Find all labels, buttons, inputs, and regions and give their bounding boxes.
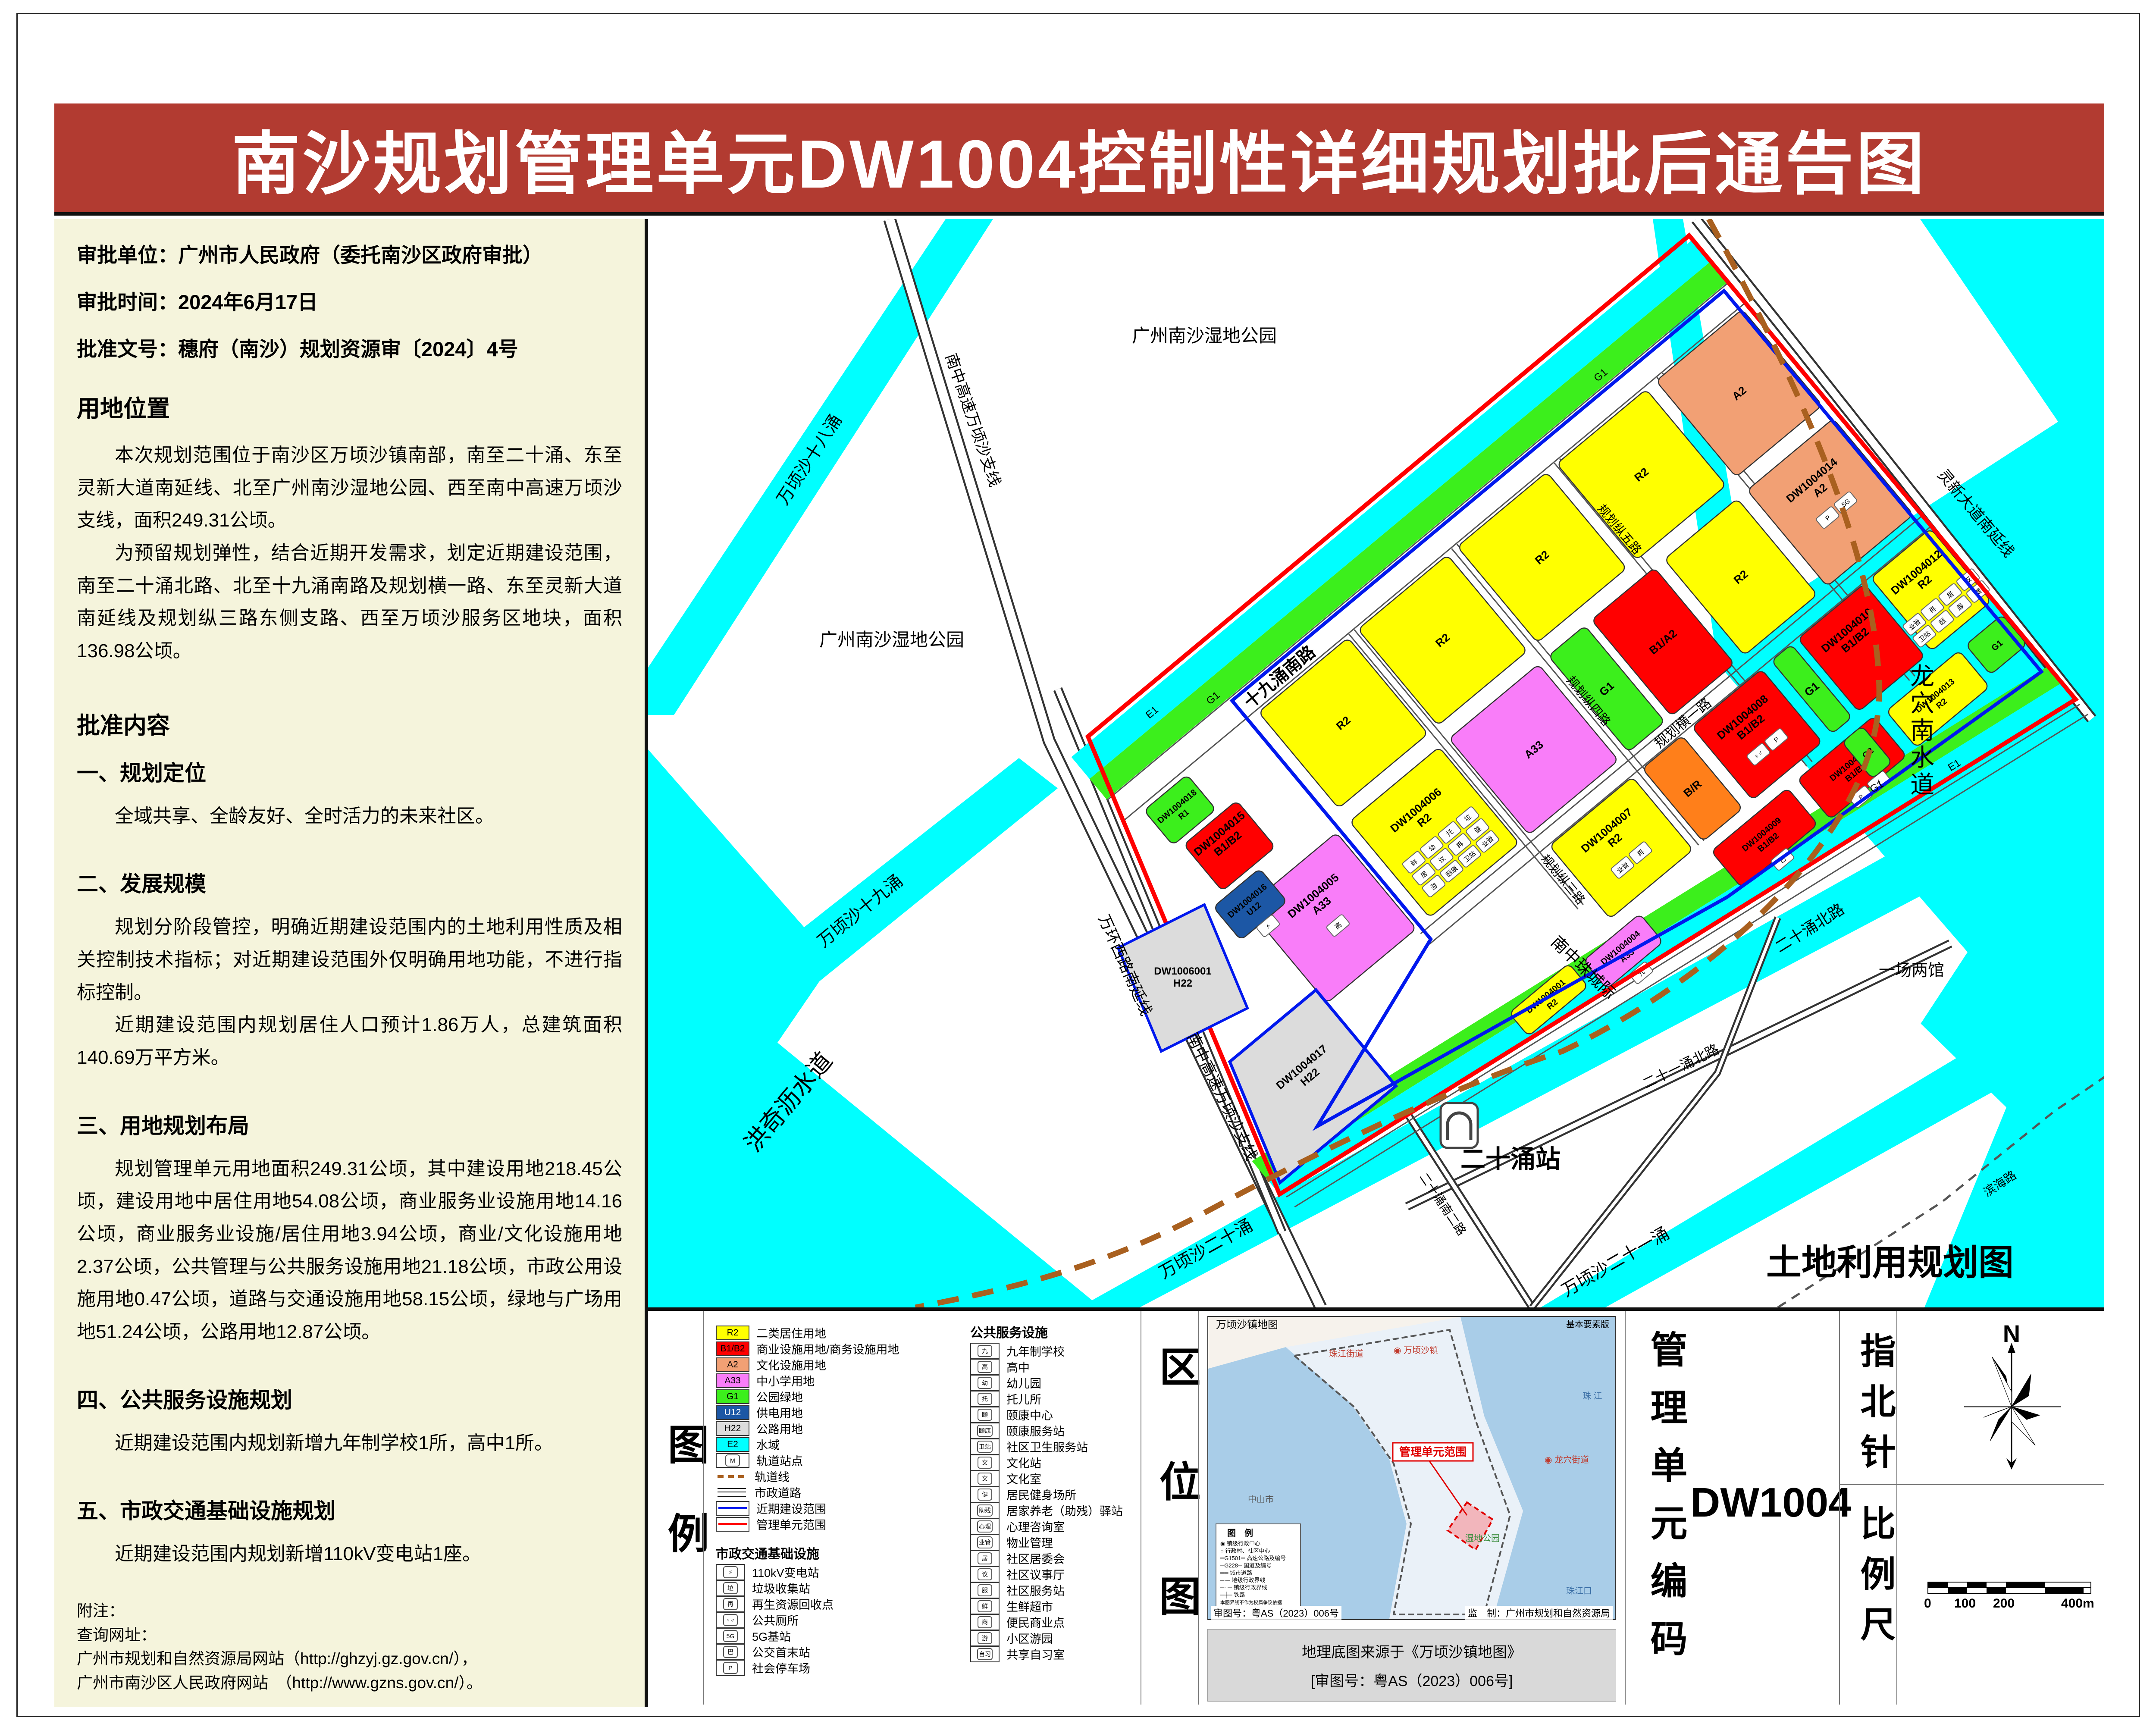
map-label-vertical: 龙穴南水道 [1910, 663, 1934, 798]
public-row: 文文化站 [970, 1454, 1138, 1470]
物业管理-icon: 业管 [977, 1536, 993, 1548]
muni-row: 再再生资源回收点 [716, 1596, 964, 1612]
小区游园-icon: 游 [978, 1632, 992, 1644]
scalebar-seg [1987, 1588, 2006, 1593]
scalebar-tick: 200 [1993, 1596, 2015, 1611]
locmap-place-label: 珠江街道 [1329, 1349, 1363, 1359]
public-row: 托托儿所 [970, 1391, 1138, 1407]
section-2-para-1: 规划分阶段管控，明确近期建设范围内的土地利用性质及相关控制技术指标；对近期建设范… [77, 911, 622, 1009]
public-row: 助残居家养老（助残）驿站 [970, 1502, 1138, 1518]
文化站-icon: 文 [978, 1457, 992, 1469]
legend-muni-rows: ⚡110kV变电站垃垃圾收集站再再生资源回收点♀♂公共厕所5G5G基站巴公交首末… [716, 1564, 964, 1676]
muni-label: 再生资源回收点 [752, 1595, 834, 1612]
divider [1141, 1311, 1141, 1705]
divider [703, 1311, 704, 1705]
社区卫生服务站-icon: 卫站 [977, 1441, 993, 1453]
public-row: 颐康颐康服务站 [970, 1423, 1138, 1439]
文化室-icon: 文 [978, 1473, 992, 1485]
footnotes: 附注： 查询网址： 广州市规划和自然资源局网站（http://ghzyj.gz.… [77, 1599, 483, 1695]
muni-row: 垃垃圾收集站 [716, 1580, 964, 1596]
scalebar-seg [1967, 1588, 1987, 1593]
public-row: 文文化室 [970, 1470, 1138, 1486]
muni-row: 5G5G基站 [716, 1628, 964, 1644]
legend-label: 二类居住用地 [756, 1324, 826, 1341]
legend-title: 图例 [655, 1423, 714, 1601]
legend-swatch-A2: A2 [716, 1357, 749, 1372]
legend-row-road: 市政道路 [716, 1484, 964, 1500]
legend-row-R2: R2二类居住用地 [716, 1325, 964, 1341]
便民商业点-icon: 商 [978, 1616, 992, 1628]
public-row: 高高中 [970, 1359, 1138, 1375]
scalebar-seg [1948, 1588, 1967, 1593]
public-icon-文化室: 文 [970, 1470, 1000, 1487]
scalebar-seg [1928, 1583, 1948, 1587]
locmap-place-label: ◉ 万顷沙镇 [1394, 1345, 1438, 1355]
muni-icon-公交首末站: 巴 [716, 1644, 745, 1660]
map-label: 广州南沙湿地公园 [1132, 326, 1277, 346]
legend-symbol-rail [716, 1470, 748, 1483]
scalebar-tick: 100 [1954, 1596, 1976, 1611]
legend-landuse-rows: R2二类居住用地B1/B2商业设施用地/商务设施用地A2文化设施用地A33中小学… [716, 1325, 964, 1532]
public-label: 社区居委会 [1006, 1550, 1065, 1567]
居家养老（助残）驿站-icon: 助残 [977, 1504, 993, 1517]
muni-label: 社会停车场 [752, 1659, 810, 1676]
public-label: 生鲜超市 [1006, 1598, 1053, 1614]
muni-label: 110kV变电站 [752, 1564, 819, 1580]
rail-line-symbol [718, 1475, 746, 1478]
社区服务站-icon: 服 [978, 1584, 992, 1596]
public-row: 游小区游园 [970, 1630, 1138, 1646]
5G基站-icon: 5G [723, 1630, 738, 1642]
location-heading: 用地位置 [77, 389, 622, 423]
public-label: 社区议事厅 [1006, 1566, 1065, 1583]
legend-landuse-column: R2二类居住用地B1/B2商业设施用地/商务设施用地A2文化设施用地A33中小学… [716, 1325, 964, 1676]
public-icon-颐康中心: 颐 [970, 1407, 1000, 1423]
muni-icon-110kV变电站: ⚡ [716, 1564, 745, 1580]
public-icon-社区卫生服务站: 卫站 [970, 1439, 1000, 1455]
muni-label: 垃圾收集站 [752, 1580, 810, 1596]
legend-label: 市政道路 [755, 1484, 801, 1501]
legend-label: 公园绿地 [756, 1388, 803, 1405]
scalebar-seg [2006, 1588, 2045, 1593]
public-row: 幼幼儿园 [970, 1375, 1138, 1391]
location-para-1: 本次规划范围位于南沙区万顷沙镇南部，南至二十涌、东至灵新大道南延线、北至广州南沙… [77, 439, 622, 537]
legend-label: 轨道站点 [756, 1452, 803, 1469]
location-para-2: 为预留规划弹性，结合近期开发需求，划定近期建设范围，南至二十涌北路、北至十九涌南… [77, 537, 622, 668]
public-icon-社区服务站: 服 [970, 1582, 1000, 1598]
locmap-caption: 地理底图来源于《万顷沙镇地图》 [审图号：粤AS（2023）006号] [1207, 1629, 1616, 1702]
legend-symbol-recent [716, 1501, 749, 1516]
divider [1839, 1311, 1840, 1705]
map-label: 土地利用规划图 [1766, 1243, 2014, 1282]
footnote-line: 附注： [77, 1599, 483, 1623]
高中-icon: 高 [978, 1361, 992, 1373]
再生资源回收点-icon: 再 [723, 1598, 738, 1610]
public-label: 文化站 [1006, 1454, 1041, 1471]
legend-public-rows: 九九年制学校高高中幼幼儿园托托儿所颐颐康中心颐康颐康服务站卫站社区卫生服务站文文… [970, 1343, 1138, 1662]
muni-label: 公共厕所 [752, 1611, 799, 1628]
110kV变电站-icon: ⚡ [723, 1566, 738, 1578]
public-icon-居民健身场所: 健 [970, 1486, 1000, 1503]
legend-row-station: M轨道站点 [716, 1452, 964, 1468]
muni-icon-再生资源回收点: 再 [716, 1596, 745, 1612]
locmap-place-label: 珠江口 [1566, 1586, 1592, 1596]
public-label: 幼儿园 [1006, 1374, 1041, 1391]
legend-swatch-U12: U12 [716, 1405, 749, 1420]
public-icon-小区游园: 游 [970, 1630, 1000, 1646]
public-label: 颐康服务站 [1006, 1422, 1065, 1439]
locmap-place-label: 珠 江 [1583, 1391, 1602, 1401]
scalebar-tick: 400m [2061, 1596, 2094, 1611]
public-label: 共享自习室 [1006, 1645, 1065, 1662]
legend-label: 水域 [756, 1436, 780, 1453]
muni-label: 公交首末站 [752, 1643, 810, 1660]
legend-label: 管理单元范围 [756, 1516, 826, 1533]
locmap-legend-item: ══ 城市道路 [1220, 1570, 1252, 1576]
section-5-para: 近期建设范围内规划新增110kV变电站1座。 [77, 1538, 622, 1570]
location-map-svg: 管理单元范围 万顷沙镇地图 基本要素版 图 例◉ 镇级行政中心○ 行政村、社区中… [1208, 1317, 1615, 1619]
public-row: 健居民健身场所 [970, 1486, 1138, 1502]
locmap-legend-note: 本图界线不作为权属争议依据 [1220, 1599, 1282, 1605]
public-label: 小区游园 [1006, 1630, 1053, 1646]
public-row: 居社区居委会 [970, 1550, 1138, 1566]
public-label: 高中 [1006, 1358, 1030, 1375]
public-label: 社区卫生服务站 [1006, 1438, 1088, 1455]
municipal-road-symbol [718, 1488, 746, 1497]
public-row: 议社区议事厅 [970, 1566, 1138, 1582]
map-label: 一场两馆 [1879, 962, 1944, 980]
public-label: 心理咨询室 [1006, 1518, 1065, 1535]
locmap-footer-left: 审图号：粤AS（2023）006号 [1211, 1606, 1341, 1620]
legend-swatch-E2: E2 [716, 1437, 749, 1452]
map-label: 广州南沙湿地公园 [819, 630, 964, 650]
locmap-legend-item: ○ 行政村、社区中心 [1220, 1548, 1270, 1554]
legend-row-B1-B2: B1/B2商业设施用地/商务设施用地 [716, 1341, 964, 1357]
info-panel: 审批单位：广州市人民政府（委托南沙区政府审批） 审批时间：2024年6月17日 … [54, 219, 648, 1707]
public-row: 卫站社区卫生服务站 [970, 1439, 1138, 1454]
心理咨询室-icon: 心理 [977, 1520, 993, 1533]
locmap-legend-item: ─··─ 镇级行政界线 [1220, 1584, 1267, 1591]
九年制学校-icon: 九 [978, 1345, 992, 1357]
compass-blade [1990, 1407, 2012, 1441]
居民健身场所-icon: 健 [978, 1489, 992, 1501]
public-row: 服社区服务站 [970, 1582, 1138, 1598]
locmap-place-label: 中山市 [1248, 1495, 1274, 1504]
caption-line-1: 地理底图来源于《万顷沙镇地图》 [1302, 1640, 1522, 1661]
page-title: 南沙规划管理单元DW1004控制性详细规划批后通告图 [232, 109, 1927, 207]
locmap-legend-item: ─┼─ 铁路 [1220, 1592, 1245, 1598]
locmap-legend-item: ─·─ 地级行政界线 [1220, 1577, 1265, 1583]
public-icon-物业管理: 业管 [970, 1534, 1000, 1551]
section-2-heading: 二、发展规模 [77, 867, 622, 898]
public-label: 物业管理 [1006, 1534, 1053, 1551]
rail-station-icon: M [725, 1454, 740, 1467]
scalebar-seg [1987, 1583, 2006, 1587]
public-icon-居家养老（助残）驿站: 助残 [970, 1502, 1000, 1519]
locmap-callout-label: 管理单元范围 [1399, 1445, 1467, 1458]
public-icon-生鲜超市: 鲜 [970, 1598, 1000, 1614]
muni-label: 5G基站 [752, 1627, 791, 1644]
legend-swatch-A33: A33 [716, 1373, 749, 1388]
muni-row: P社会停车场 [716, 1660, 964, 1676]
parcel-type: H22 [1173, 978, 1192, 989]
muni-row: ♀♂公共厕所 [716, 1612, 964, 1628]
public-row: 业管物业管理 [970, 1534, 1138, 1550]
muni-icon-5G基站: 5G [716, 1628, 745, 1644]
public-label: 便民商业点 [1006, 1614, 1065, 1630]
content-heading: 批准内容 [77, 706, 622, 740]
section-4-para: 近期建设范围内规划新增九年制学校1所，高中1所。 [77, 1427, 622, 1460]
public-icon-社区居委会: 居 [970, 1550, 1000, 1567]
scalebar: 0 100 200 400m [1927, 1582, 2091, 1611]
共享自习室-icon: 自习 [977, 1648, 993, 1660]
public-title: 公共服务设施 [970, 1322, 1138, 1341]
社区居委会-icon: 居 [978, 1552, 992, 1564]
muni-icon-垃圾收集站: 垃 [716, 1580, 745, 1596]
public-row: 九九年制学校 [970, 1343, 1138, 1359]
caption-line-2: [审图号：粤AS（2023）006号] [1311, 1669, 1513, 1690]
muni-title: 市政交通基础设施 [716, 1543, 964, 1562]
unit-code-label: 管理单元编码 [1639, 1330, 1692, 1677]
unit-boundary-symbol [718, 1523, 747, 1525]
legend-swatch-G1: G1 [716, 1389, 749, 1404]
locmap-footer-right: 监 制：广州市规划和自然资源局 [1465, 1606, 1613, 1620]
legend-row-U12: U12供电用地 [716, 1404, 964, 1420]
legend-label: 供电用地 [756, 1404, 803, 1421]
muni-icon-社会停车场: P [716, 1660, 745, 1676]
legend-row-H22: H22公路用地 [716, 1420, 964, 1436]
legend-label: 中小学用地 [756, 1372, 815, 1389]
public-row: 心理心理咨询室 [970, 1518, 1138, 1534]
public-row: 商便民商业点 [970, 1614, 1138, 1630]
legend-label: 商业设施用地/商务设施用地 [756, 1340, 899, 1357]
compass-rose: N [1906, 1316, 2104, 1480]
legend-row-rail: 轨道线 [716, 1468, 964, 1484]
divider [1625, 1311, 1626, 1705]
legend-label: 近期建设范围 [756, 1500, 826, 1517]
footnote-line: 查询网址： [77, 1623, 483, 1647]
legend-row-unit: 管理单元范围 [716, 1516, 964, 1532]
public-label: 居民健身场所 [1006, 1486, 1076, 1503]
approval-time: 审批时间：2024年6月17日 [77, 292, 622, 312]
divider [1840, 1484, 2104, 1485]
public-icon-社区议事厅: 议 [970, 1566, 1000, 1583]
scalebar-tick: 0 [1924, 1596, 1931, 1611]
legend-swatch-B1-B2: B1/B2 [716, 1341, 749, 1356]
public-row: 鲜生鲜超市 [970, 1598, 1138, 1614]
公共厕所-icon: ♀♂ [723, 1614, 738, 1626]
public-label: 九年制学校 [1006, 1342, 1065, 1359]
public-icon-托儿所: 托 [970, 1391, 1000, 1407]
scalebar-seg [2006, 1583, 2045, 1587]
legend-symbol-unit [716, 1517, 749, 1532]
locmap-legend-item: ◉ 镇级行政中心 [1220, 1540, 1260, 1547]
map-label: 二十涌站 [1460, 1145, 1561, 1173]
public-icon-颐康服务站: 颐康 [970, 1423, 1000, 1439]
landuse-map-svg: R2R2R2R2A2DW1004005A33高DW1004006R2鲜幼托垃居议… [648, 219, 2104, 1307]
legend-symbol-road [716, 1486, 748, 1499]
compass-blade [2012, 1374, 2031, 1407]
public-icon-心理咨询室: 心理 [970, 1518, 1000, 1535]
颐康服务站-icon: 颐康 [977, 1425, 993, 1437]
locmap-place-label: ◉ 龙穴街道 [1545, 1455, 1589, 1465]
scalebar-seg [1948, 1583, 1967, 1587]
public-label: 居家养老（助残）驿站 [1006, 1502, 1123, 1519]
section-2-para-2: 近期建设范围内规划居住人口预计1.86万人，总建筑面积140.69万平方米。 [77, 1009, 622, 1074]
title-banner: 南沙规划管理单元DW1004控制性详细规划批后通告图 [54, 103, 2104, 216]
幼儿园-icon: 幼 [978, 1377, 992, 1389]
divider [1198, 1311, 1199, 1705]
locmap-legend-title: 图 例 [1227, 1528, 1253, 1538]
生鲜超市-icon: 鲜 [978, 1600, 992, 1612]
recent-boundary-symbol [718, 1507, 747, 1509]
托儿所-icon: 托 [978, 1393, 992, 1405]
footnote-line: 广州市南沙区人民政府网站 （http://www.gzns.gov.cn/）。 [77, 1671, 483, 1695]
public-label: 颐康中心 [1006, 1406, 1053, 1423]
footnote-line: 广州市规划和自然资源局网站（http://ghzyj.gz.gov.cn/）， [77, 1647, 483, 1671]
public-icon-高中: 高 [970, 1359, 1000, 1375]
locmap-place-label: 湿地公园 [1465, 1533, 1500, 1543]
public-label: 文化室 [1006, 1470, 1041, 1487]
legend-swatch-H22: H22 [716, 1421, 749, 1436]
locmap-map-version: 基本要素版 [1566, 1319, 1609, 1329]
location-map-box: 管理单元范围 万顷沙镇地图 基本要素版 图 例◉ 镇级行政中心○ 行政村、社区中… [1207, 1316, 1616, 1620]
scalebar-seg [2045, 1588, 2084, 1593]
legend-row-A2: A2文化设施用地 [716, 1357, 964, 1373]
section-4-heading: 四、公共服务设施规划 [77, 1383, 622, 1414]
road-line [1124, 303, 1745, 820]
muni-icon-公共厕所: ♀♂ [716, 1612, 745, 1628]
approval-doc: 批准文号：穗府（南沙）规划资源审〔2024〕4号 [77, 339, 622, 359]
scalebar-seg [1967, 1583, 1987, 1587]
scalebar-seg [2045, 1583, 2084, 1587]
section-5-heading: 五、市政交通基础设施规划 [77, 1494, 622, 1525]
locmap-map-title: 万顷沙镇地图 [1216, 1319, 1278, 1331]
public-icon-九年制学校: 九 [970, 1343, 1000, 1359]
legend-label: 文化设施用地 [756, 1356, 826, 1373]
locmap-legend-item: ─G228─ 国道及编号 [1220, 1562, 1272, 1569]
section-3-heading: 三、用地规划布局 [77, 1109, 622, 1140]
scalebar-label: 比例尺 [1849, 1505, 1900, 1656]
landuse-map: R2R2R2R2A2DW1004005A33高DW1004006R2鲜幼托垃居议… [648, 219, 2104, 1307]
locmap-title: 区位图 [1146, 1345, 1206, 1689]
section-1-para: 全域共享、全龄友好、全时活力的未来社区。 [77, 800, 622, 833]
public-label: 社区服务站 [1006, 1582, 1065, 1598]
public-row: 自习共享自习室 [970, 1646, 1138, 1662]
compass-blade [1992, 1357, 2012, 1407]
legend-label: 公路用地 [756, 1420, 803, 1437]
section-1-heading: 一、规划定位 [77, 756, 622, 787]
legend-symbol-station: M [716, 1453, 749, 1468]
muni-row: 巴公交首末站 [716, 1644, 964, 1660]
unit-code-value: DW1004 [1690, 1479, 1837, 1526]
legend-swatch-R2: R2 [716, 1326, 749, 1340]
public-icon-幼儿园: 幼 [970, 1375, 1000, 1391]
public-label: 托儿所 [1006, 1390, 1041, 1407]
颐康中心-icon: 颐 [978, 1409, 992, 1421]
public-icon-便民商业点: 商 [970, 1614, 1000, 1630]
legend-row-E2: E2水域 [716, 1436, 964, 1452]
locmap-legend-item: ═G1501═ 高速公路及编号 [1220, 1555, 1286, 1561]
社区议事厅-icon: 议 [978, 1568, 992, 1580]
垃圾收集站-icon: 垃 [723, 1582, 738, 1594]
scalebar-seg [1928, 1588, 1948, 1593]
legend-public-column: 公共服务设施 九九年制学校高高中幼幼儿园托托儿所颐颐康中心颐康颐康服务站卫站社区… [970, 1319, 1138, 1662]
legend-row-recent: 近期建设范围 [716, 1500, 964, 1516]
muni-row: ⚡110kV变电站 [716, 1564, 964, 1580]
parcel-code: DW1006001 [1154, 965, 1211, 977]
public-icon-共享自习室: 自习 [970, 1646, 1000, 1662]
legend-row-A33: A33中小学用地 [716, 1373, 964, 1388]
legend-row-G1: G1公园绿地 [716, 1388, 964, 1404]
legend-label: 轨道线 [755, 1468, 790, 1485]
approval-unit: 审批单位：广州市人民政府（委托南沙区政府审批） [77, 245, 622, 265]
社会停车场-icon: P [723, 1662, 738, 1674]
section-3-para: 规划管理单元用地面积249.31公顷，其中建设用地218.45公顷，建设用地中居… [77, 1153, 622, 1348]
public-row: 颐颐康中心 [970, 1407, 1138, 1423]
公交首末站-icon: 巴 [723, 1646, 738, 1658]
compass-label: 指北针 [1849, 1332, 1900, 1484]
public-icon-文化站: 文 [970, 1454, 1000, 1471]
